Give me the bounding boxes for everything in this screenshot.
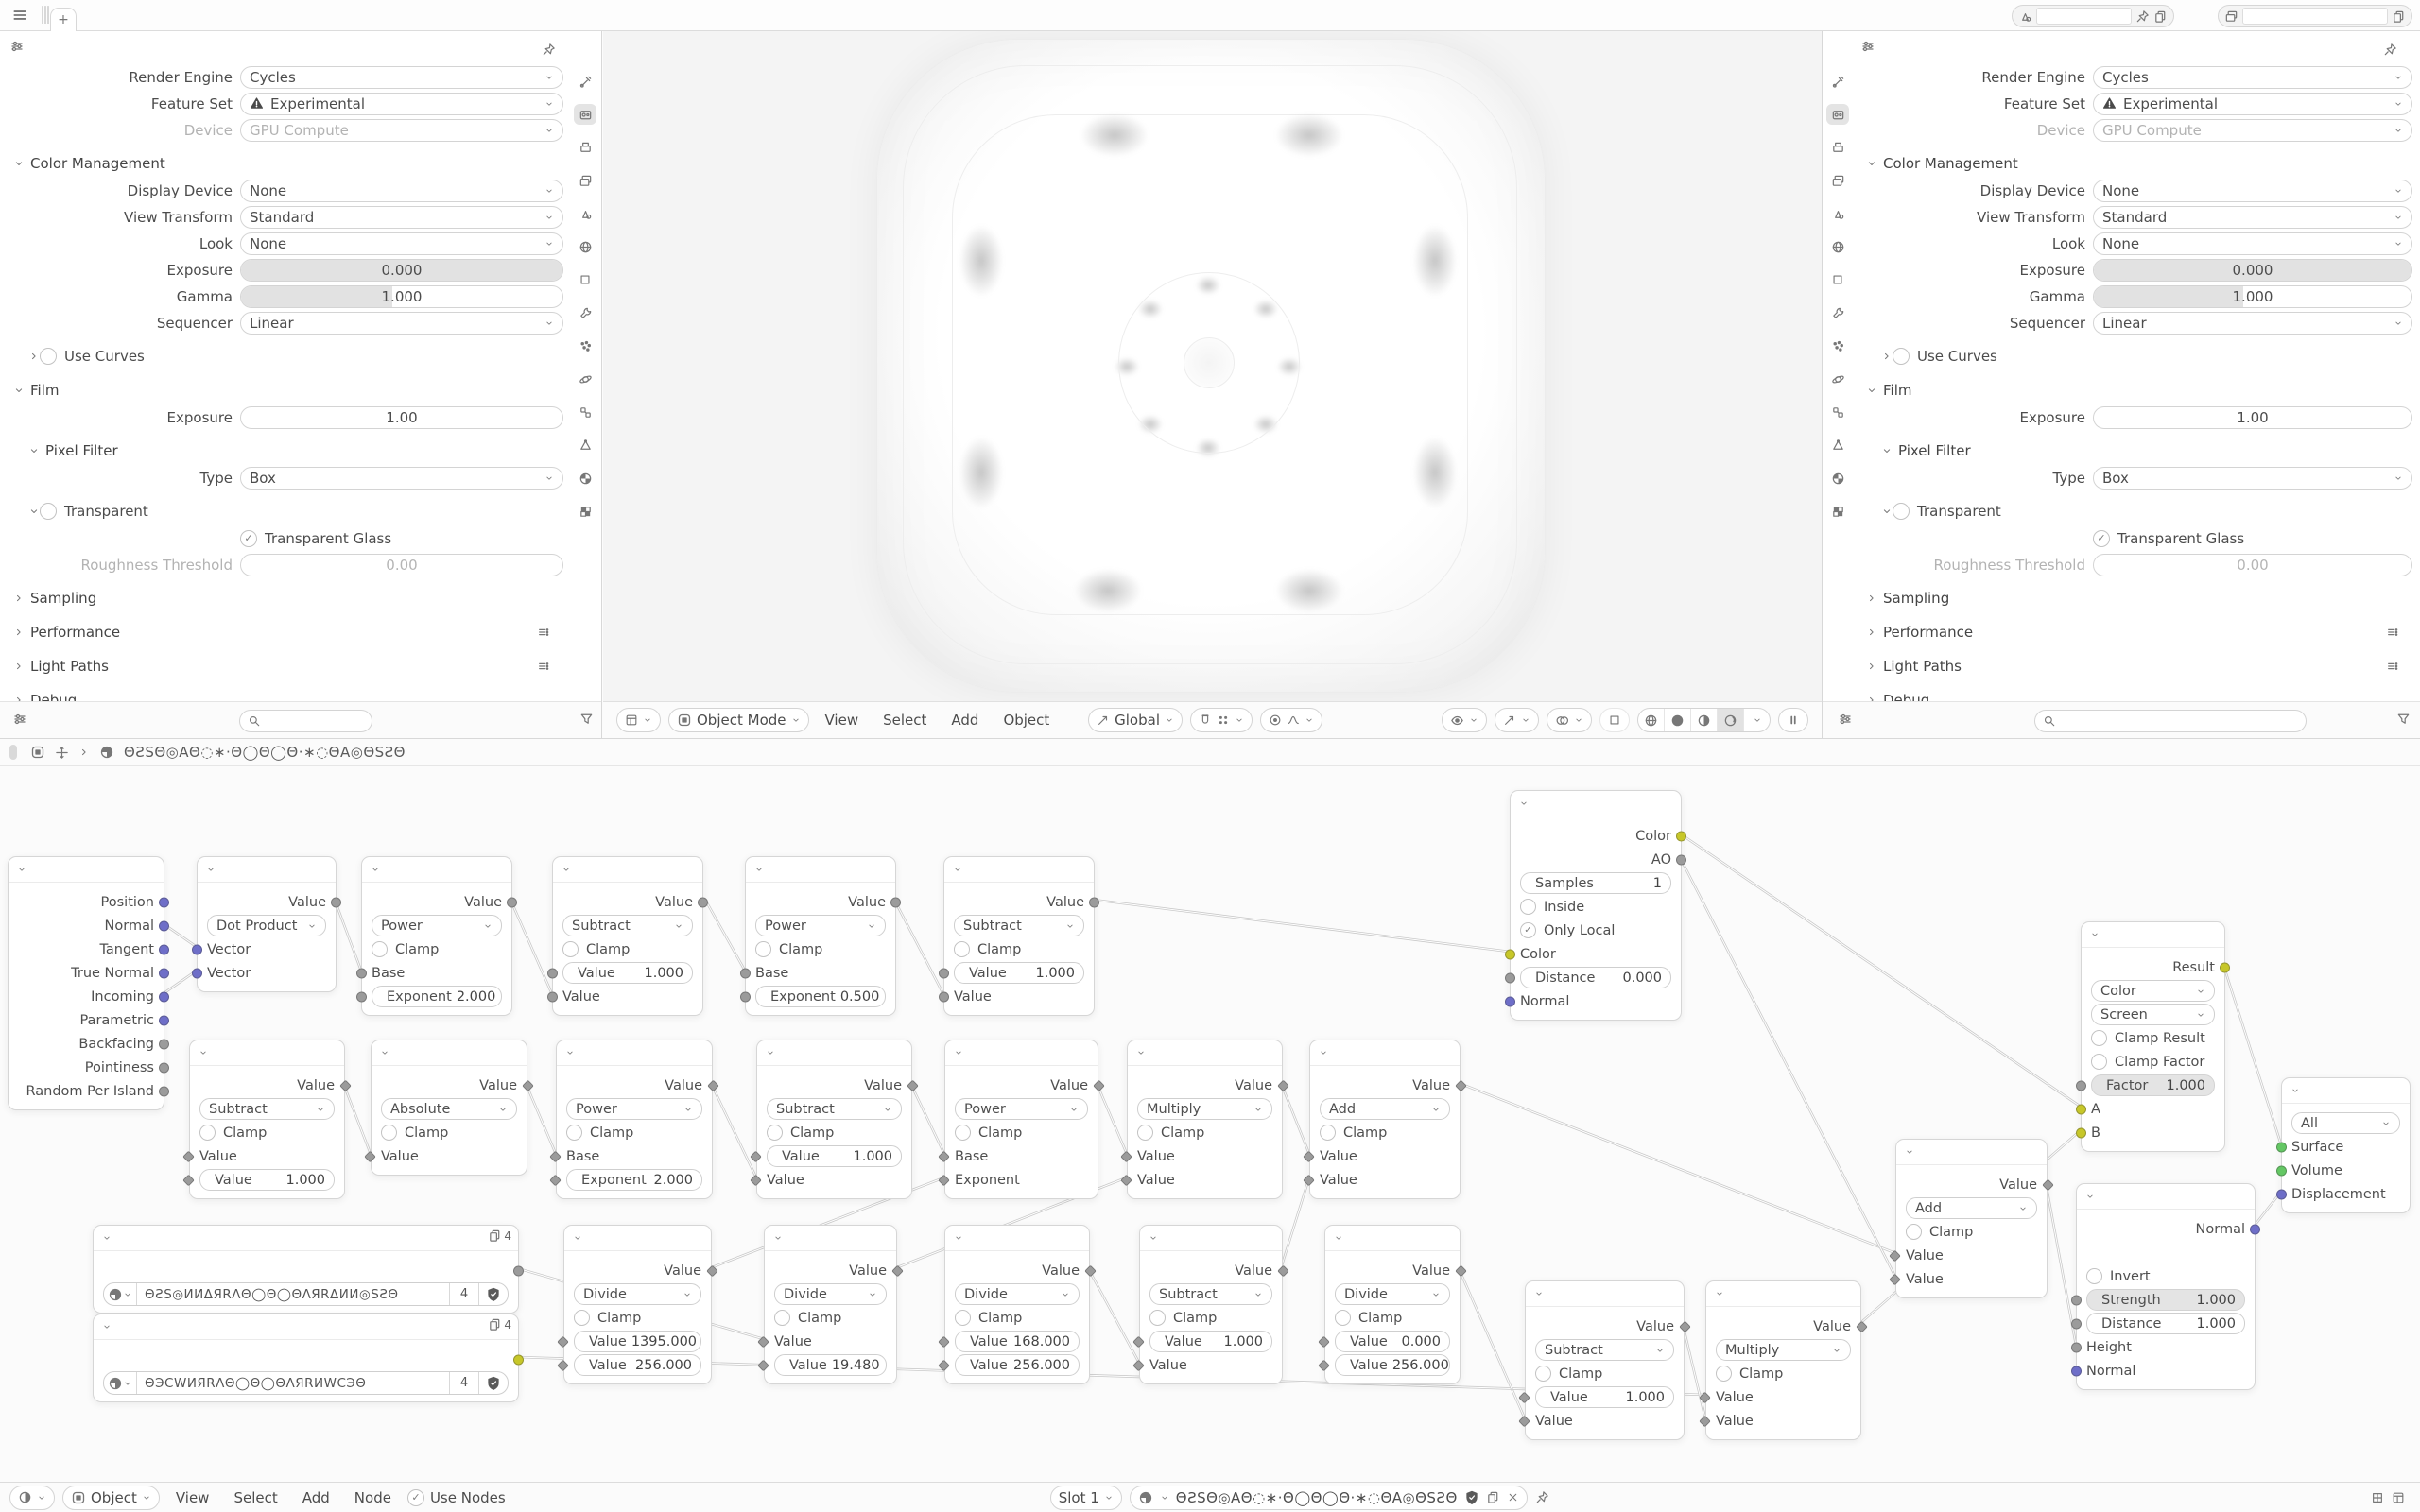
checkbox-only-local[interactable]: ✓Only Local (1511, 919, 1681, 942)
value-field-value[interactable]: Value1.000 (1535, 1386, 1674, 1408)
section-color-management[interactable]: Color Management (0, 151, 563, 176)
node-ambient-occlusion[interactable]: ColorAO Samples1Inside✓Only LocalColor D… (1510, 790, 1682, 1021)
tab-texture[interactable] (574, 501, 596, 522)
select-device[interactable]: GPU Compute (2093, 119, 2412, 142)
section-use-curves[interactable]: Use Curves (1853, 344, 2412, 369)
properties-data-icon[interactable] (12, 712, 27, 727)
select-sequencer[interactable]: Linear (240, 312, 563, 335)
shader-type-selector[interactable]: Object (62, 1486, 160, 1510)
panel-options-icon[interactable] (2386, 626, 2399, 639)
tab-output[interactable] (574, 137, 596, 158)
socket-out-value: Value (1325, 1259, 1460, 1282)
fake-user-shield-icon[interactable] (478, 1283, 508, 1305)
checkbox-clamp[interactable]: Clamp (1896, 1220, 2047, 1244)
checkbox-inside[interactable]: Inside (1511, 895, 1681, 919)
section-performance[interactable]: Performance (0, 620, 563, 644)
socket-out-value: Value (1310, 1074, 1460, 1097)
scene-name-field[interactable] (2036, 8, 2132, 25)
transform-orientation[interactable]: Global (1088, 708, 1183, 732)
row-type: Type Box (0, 466, 563, 490)
select-view-transform[interactable]: Standard (240, 206, 563, 229)
browse-image-icon[interactable] (104, 1283, 136, 1305)
checkbox-clamp[interactable]: Clamp (1140, 1306, 1282, 1330)
row-type: Type Box (1853, 466, 2412, 490)
workspace-tab-2[interactable] (44, 6, 46, 24)
properties-editor-icon[interactable] (1860, 39, 1875, 54)
node-menu-select[interactable]: Select (225, 1489, 285, 1506)
users-count[interactable]: 4 (449, 1283, 478, 1305)
select-type[interactable]: Box (2093, 467, 2412, 490)
checkbox-clamp[interactable]: Clamp (746, 937, 895, 961)
node-header[interactable] (564, 1226, 711, 1251)
value-field-exponent[interactable]: Exponent2.000 (566, 1169, 702, 1191)
section-film[interactable]: Film (0, 378, 563, 403)
node-math-power-1[interactable]: ValuePowerClampBase Exponent2.000 (361, 856, 512, 1016)
section-light-paths[interactable]: Light Paths (1853, 654, 2412, 679)
select-render-engine[interactable]: Cycles (2093, 66, 2412, 89)
socket-out-image (94, 1259, 518, 1282)
checkbox-clamp-factor[interactable]: Clamp Factor (2082, 1050, 2224, 1074)
section-sampling[interactable]: Sampling (0, 586, 563, 610)
operation-dropdown[interactable]: Absolute (381, 1098, 517, 1120)
operation-dropdown[interactable]: Divide (574, 1283, 701, 1305)
grid-icon[interactable] (2371, 1491, 2384, 1504)
viewport-menu-view[interactable]: View (817, 712, 868, 729)
filter-funnel-icon[interactable] (2396, 712, 2411, 726)
socket-in-value: Value (1706, 1409, 1860, 1433)
image-datablock[interactable]: ΘƧЅ◎ИИΔЯRΛΘ◯Θ◯ΘΛЯRΔИИ◎ЅƧΘ 4 (103, 1282, 509, 1306)
fake-user-shield-icon[interactable] (1464, 1490, 1479, 1505)
select-render-engine[interactable]: Cycles (240, 66, 563, 89)
node-math-add-1[interactable]: ValueAddClampValueValue (1309, 1039, 1461, 1199)
socket-out-normal: Normal (2077, 1217, 2255, 1241)
viewport-3d[interactable]: Object ModeViewSelectAddObjectGlobal (603, 31, 1822, 738)
xray-toggle[interactable] (1599, 708, 1630, 732)
material-datablock[interactable]: ΘƧЅΘ◎ΑΘ◌∗·Θ◯Θ◯Θ·∗◌ΘΑ◎ΘЅƧΘ (1130, 1486, 1528, 1510)
pin-id-icon[interactable] (2383, 43, 2397, 57)
checkbox-transparent[interactable] (40, 503, 57, 520)
node-header[interactable] (190, 1040, 344, 1066)
socket-out-value: Value (1526, 1314, 1684, 1338)
checkbox-clamp[interactable]: Clamp (362, 937, 511, 961)
value-field-factor[interactable]: Factor1.000 (2091, 1074, 2215, 1096)
node-image-texture-1[interactable]: 4 ΘƧЅ◎ИИΔЯRΛΘ◯Θ◯ΘΛЯRΔИИ◎ЅƧΘ 4 (93, 1225, 519, 1314)
value-field-distance[interactable]: Distance1.000 (2086, 1313, 2245, 1334)
shading-material-preview[interactable] (1690, 709, 1717, 731)
viewport-menu-object[interactable]: Object (994, 712, 1058, 729)
tab-modifiers[interactable] (1826, 302, 1849, 323)
viewlayer-name-field[interactable] (2242, 8, 2388, 25)
node-menu-view[interactable]: View (167, 1489, 218, 1506)
properties-search-input[interactable] (2034, 710, 2307, 732)
value-field-value[interactable]: Value1.000 (954, 962, 1084, 984)
tab-scene[interactable] (1826, 203, 1849, 224)
node-header[interactable] (2282, 1078, 2410, 1104)
select-look[interactable]: None (240, 232, 563, 255)
tab-object[interactable] (1826, 269, 1849, 290)
node-math-subtract-4[interactable]: ValueSubtractClamp Value1.000Value (756, 1039, 912, 1199)
checkbox-clamp-result[interactable]: Clamp Result (2082, 1026, 2224, 1050)
node-editor-footer: ObjectViewSelectAddNode✓Use NodesSlot 1 … (0, 1482, 2420, 1512)
select-feature-set[interactable]: Experimental (240, 93, 563, 115)
socket-out-value: Value (564, 1259, 711, 1282)
value-field-value[interactable]: Value1.000 (1149, 1331, 1272, 1352)
checkbox-clamp[interactable]: Clamp (1325, 1306, 1460, 1330)
tab-object[interactable] (574, 269, 596, 290)
node-header[interactable] (1310, 1040, 1460, 1066)
number-exposure[interactable]: 1.00 (240, 406, 563, 429)
node-header[interactable] (553, 857, 702, 883)
tab-output[interactable] (1826, 137, 1849, 158)
browse-image-icon[interactable] (104, 1372, 136, 1394)
operation-dropdown[interactable]: All (2291, 1112, 2400, 1134)
editor-type-button[interactable] (9, 1486, 55, 1510)
operation-dropdown[interactable]: Add (1320, 1098, 1450, 1120)
checkbox-clamp[interactable]: Clamp (564, 1306, 711, 1330)
checkbox-transparent-glass[interactable]: ✓ (240, 530, 257, 547)
value-field-value[interactable]: Value1.000 (767, 1145, 902, 1167)
socket-out-value: Value (757, 1074, 911, 1097)
operation-dropdown[interactable]: Power (566, 1098, 702, 1120)
node-material-output[interactable]: AllSurfaceVolumeDisplacement (2281, 1077, 2411, 1213)
section-pixel-filter[interactable]: Pixel Filter (0, 438, 563, 463)
node-header[interactable] (746, 857, 895, 883)
tab-modifiers[interactable] (574, 302, 596, 323)
value-field-value[interactable]: Value168.000 (955, 1331, 1080, 1352)
checkbox-clamp[interactable]: Clamp (1706, 1362, 1860, 1385)
tab-view-layer[interactable] (1826, 170, 1849, 191)
node-header[interactable] (1128, 1040, 1282, 1066)
operation-dropdown[interactable]: Subtract (199, 1098, 335, 1120)
pause-render-button[interactable] (1778, 708, 1808, 732)
operation-dropdown[interactable]: Add (1906, 1197, 2037, 1219)
row-view-transform: View Transform Standard (1853, 205, 2412, 229)
checkbox-use-curves[interactable] (1893, 348, 1910, 365)
properties-editor-icon[interactable] (9, 39, 25, 54)
image-name-field[interactable]: ΘƧЅ◎ИИΔЯRΛΘ◯Θ◯ΘΛЯRΔИИ◎ЅƧΘ (136, 1283, 449, 1305)
section-transparent[interactable]: Transparent (0, 499, 563, 524)
node-header[interactable] (372, 1040, 527, 1066)
close-icon[interactable] (1507, 1491, 1519, 1503)
node-header[interactable] (1706, 1281, 1860, 1307)
checkbox-use-curves[interactable] (40, 348, 57, 365)
node-header[interactable] (1526, 1281, 1684, 1307)
tab-view-layer[interactable] (574, 170, 596, 191)
copy-icon[interactable] (2153, 9, 2168, 24)
node-math-divide-2[interactable]: ValueDivideClampValue Value19.480 (764, 1225, 897, 1384)
select-type[interactable]: Box (240, 467, 563, 490)
slider-exposure[interactable]: 0.000 (2093, 259, 2412, 282)
node-header[interactable] (9, 857, 164, 883)
operation-dropdown[interactable]: Multiply (1716, 1339, 1851, 1361)
row-device: Device GPU Compute (1853, 118, 2412, 142)
material-slot-selector[interactable]: Slot 1 (1050, 1486, 1122, 1510)
value-field-samples[interactable]: Samples1 (1520, 872, 1671, 894)
operation-dropdown[interactable]: Divide (1335, 1283, 1450, 1305)
operation-dropdown[interactable]: Power (372, 915, 502, 936)
node-math-multiply-1[interactable]: ValueMultiplyClampValueValue (1127, 1039, 1283, 1199)
pin-id-icon[interactable] (542, 43, 556, 57)
image-datablock[interactable]: ΘЭСWИЯRΛΘ◯Θ◯ΘΛЯRИWСЭΘ 4 (103, 1371, 509, 1395)
shading-rendered[interactable] (1717, 709, 1743, 731)
value-field-value[interactable]: Value0.000 (1335, 1331, 1450, 1352)
copy-icon[interactable] (2392, 9, 2406, 24)
users-count[interactable]: 4 (449, 1372, 478, 1394)
node-math-divide-3[interactable]: ValueDivideClamp Value168.000 Value256.0… (944, 1225, 1090, 1384)
node-geometry[interactable]: PositionNormalTangentTrue NormalIncoming… (8, 856, 164, 1110)
scene-icon (2018, 9, 2032, 24)
workspace-tab-3[interactable] (47, 6, 49, 24)
window-layout-icon[interactable] (2392, 1491, 2405, 1504)
checkbox-invert[interactable]: Invert (2077, 1264, 2255, 1288)
fake-user-shield-icon[interactable] (478, 1372, 508, 1394)
shading-dropdown[interactable] (1743, 709, 1770, 731)
tab-material[interactable] (574, 468, 596, 489)
tab-particles[interactable] (574, 335, 596, 356)
object-visibility-dropdown[interactable] (1442, 708, 1487, 732)
checkbox-clamp[interactable]: Clamp (945, 1121, 1098, 1144)
tab-constraints[interactable] (574, 402, 596, 422)
tab-physics[interactable] (1826, 369, 1849, 389)
value-field-value[interactable]: Value1.000 (199, 1169, 335, 1191)
header-grip[interactable] (9, 745, 17, 760)
node-math-subtract-5[interactable]: ValueSubtractClamp Value1.000Value (1139, 1225, 1283, 1384)
operation-dropdown[interactable]: Divide (955, 1283, 1080, 1305)
value-field-value[interactable]: Value1.000 (562, 962, 693, 984)
select-sequencer[interactable]: Linear (2093, 312, 2412, 335)
checkbox-clamp[interactable]: Clamp (945, 1306, 1089, 1330)
tab-particles[interactable] (1826, 335, 1849, 356)
checkbox-clamp[interactable]: Clamp (1128, 1121, 1282, 1144)
node-math-subtract-6[interactable]: ValueSubtractClamp Value1.000Value (1525, 1280, 1685, 1440)
value-field-exponent[interactable]: Exponent0.500 (755, 986, 886, 1007)
mode-selector[interactable]: Object Mode (668, 708, 809, 732)
node-header[interactable] (1140, 1226, 1282, 1251)
section-transparent[interactable]: Transparent (1853, 499, 2412, 524)
operation-dropdown[interactable]: Multiply (1137, 1098, 1272, 1120)
node-header[interactable] (945, 1226, 1089, 1251)
snap-cursor-icon[interactable] (55, 746, 69, 760)
socket-in-displacement: Displacement (2282, 1182, 2410, 1206)
tab-scene[interactable] (574, 203, 596, 224)
node-math-add-2[interactable]: ValueAddClampValueValue (1895, 1139, 2048, 1298)
properties-search-input[interactable] (239, 710, 372, 732)
image-name-field[interactable]: ΘЭСWИЯRΛΘ◯Θ◯ΘΛЯRИWСЭΘ (136, 1372, 449, 1394)
viewport-menu-select[interactable]: Select (874, 712, 935, 729)
overlays-dropdown[interactable] (1547, 708, 1592, 732)
hamburger-menu-icon[interactable] (11, 7, 28, 24)
node-math-subtract-3[interactable]: ValueSubtractClampValue Value1.000 (189, 1039, 345, 1199)
number-roughness-threshold[interactable]: 0.00 (2093, 554, 2412, 576)
node-header[interactable] (1325, 1226, 1460, 1251)
section-light-paths[interactable]: Light Paths (0, 654, 563, 679)
panel-options-icon[interactable] (537, 660, 550, 673)
node-header[interactable] (198, 857, 336, 883)
value-field-exponent[interactable]: Exponent2.000 (372, 986, 502, 1007)
operation-dropdown[interactable]: Subtract (1149, 1283, 1272, 1305)
checkbox-clamp[interactable]: Clamp (1526, 1362, 1684, 1385)
node-header[interactable] (765, 1226, 896, 1251)
tab-constraints[interactable] (1826, 402, 1849, 422)
filter-funnel-icon[interactable] (579, 712, 594, 726)
select-display-device[interactable]: None (2093, 180, 2412, 202)
section-use-curves[interactable]: Use Curves (0, 344, 563, 369)
node-header[interactable] (1896, 1140, 2047, 1165)
scene-selector[interactable] (2012, 5, 2174, 27)
viewport-menu-add[interactable]: Add (942, 712, 987, 729)
value-field-value[interactable]: Value256.000 (1335, 1354, 1450, 1376)
tab-material[interactable] (1826, 468, 1849, 489)
socket-out-random-per-island: Random Per Island (9, 1079, 164, 1103)
operation-dropdown[interactable]: Screen (2091, 1004, 2215, 1025)
use-nodes-checkbox[interactable]: ✓Use Nodes (407, 1489, 506, 1506)
value-field-value[interactable]: Value19.480 (774, 1354, 887, 1376)
node-header[interactable]: 4 (94, 1314, 518, 1340)
checkbox-clamp[interactable]: Clamp (765, 1306, 896, 1330)
editor-type-button[interactable] (616, 708, 661, 732)
operation-dropdown[interactable]: Power (955, 1098, 1088, 1120)
properties-data-icon[interactable] (1838, 712, 1853, 727)
chevron-right-icon (78, 747, 90, 758)
node-header[interactable] (757, 1040, 911, 1066)
section-pixel-filter[interactable]: Pixel Filter (1853, 438, 2412, 463)
node-header[interactable] (2082, 922, 2224, 948)
workspace-tab-1[interactable] (42, 6, 43, 24)
tab-render[interactable] (574, 104, 596, 125)
node-math-multiply-2[interactable]: ValueMultiplyClampValueValue (1705, 1280, 1861, 1440)
tab-object-data[interactable] (574, 435, 596, 455)
node-math-absolute[interactable]: ValueAbsoluteClampValue (371, 1039, 527, 1176)
number-roughness-threshold[interactable]: 0.00 (240, 554, 563, 576)
value-field-value[interactable]: Value256.000 (955, 1354, 1080, 1376)
node-math-power-3[interactable]: ValuePowerClampBase Exponent2.000 (556, 1039, 713, 1199)
tab-tool[interactable] (1826, 71, 1849, 92)
viewlayer-selector[interactable] (2218, 5, 2412, 27)
breadcrumb-material-name[interactable]: ΘƧЅΘ◎ΑΘ◌∗·Θ◯Θ◯Θ·∗◌ΘΑ◎ΘЅƧΘ (124, 744, 406, 761)
node-header[interactable] (557, 1040, 712, 1066)
operation-dropdown[interactable]: Divide (774, 1283, 887, 1305)
pin-icon[interactable] (2135, 9, 2150, 24)
node-math-divide-4[interactable]: ValueDivideClamp Value0.000 Value256.000 (1324, 1225, 1461, 1384)
node-mix-color[interactable]: ResultColorScreenClamp ResultClamp Facto… (2081, 921, 2225, 1152)
operation-dropdown[interactable]: Subtract (954, 915, 1084, 936)
socket-in-color: Color (1511, 942, 1681, 966)
tab-physics[interactable] (574, 369, 596, 389)
checkbox-clamp[interactable]: Clamp (1310, 1121, 1460, 1144)
value-field-distance[interactable]: Distance0.000 (1520, 967, 1671, 988)
operation-dropdown[interactable]: Subtract (562, 915, 693, 936)
node-menu-node[interactable]: Node (346, 1489, 400, 1506)
snap-toggle[interactable] (1190, 708, 1253, 732)
shading-wireframe[interactable] (1638, 709, 1664, 731)
row-feature-set: Feature Set Experimental (0, 92, 563, 115)
node-math-power-4[interactable]: ValuePowerClampBaseExponent (944, 1039, 1098, 1199)
panel-options-icon[interactable] (537, 626, 550, 639)
checkbox-clamp[interactable]: Clamp (944, 937, 1094, 961)
select-view-transform[interactable]: Standard (2093, 206, 2412, 229)
slider-exposure[interactable]: 0.000 (240, 259, 563, 282)
shading-solid[interactable] (1664, 709, 1690, 731)
proportional-editing[interactable] (1260, 708, 1322, 732)
tab-object-data[interactable] (1826, 435, 1849, 455)
socket-in-value: Value (553, 985, 702, 1008)
value-field-value[interactable]: Value256.000 (574, 1354, 701, 1376)
operation-dropdown[interactable]: Power (755, 915, 886, 936)
properties-header (1823, 701, 2420, 738)
tab-texture[interactable] (1826, 501, 1849, 522)
node-menu-add[interactable]: Add (294, 1489, 338, 1506)
checkbox-clamp[interactable]: Clamp (190, 1121, 344, 1144)
node-header[interactable] (945, 1040, 1098, 1066)
node-math-subtract-1[interactable]: ValueSubtractClamp Value1.000Value (552, 856, 703, 1016)
node-bump[interactable]: NormalInvert Strength1.000 Distance1.000… (2076, 1183, 2256, 1390)
copy-icon[interactable] (1486, 1490, 1500, 1504)
tree-select-icon[interactable] (30, 745, 45, 760)
socket-in-b: B (2082, 1121, 2224, 1144)
socket-in-value: Value (765, 1330, 896, 1353)
slider-gamma[interactable]: 1.000 (2093, 285, 2412, 308)
tab-world[interactable] (1826, 236, 1849, 257)
row-roughness-threshold: Roughness Threshold 0.00 (1853, 553, 2412, 576)
row-render-engine: Render Engine Cycles (1853, 65, 2412, 89)
checkbox-clamp[interactable]: Clamp (372, 1121, 527, 1144)
select-feature-set[interactable]: Experimental (2093, 93, 2412, 115)
section-color-management[interactable]: Color Management (1853, 151, 2412, 176)
value-field-value[interactable]: Value1395.000 (574, 1331, 701, 1352)
number-exposure[interactable]: 1.00 (2093, 406, 2412, 429)
section-film[interactable]: Film (1853, 378, 2412, 403)
checkbox-clamp[interactable]: Clamp (557, 1121, 712, 1144)
operation-dropdown[interactable]: Color (2091, 980, 2215, 1002)
select-display-device[interactable]: None (240, 180, 563, 202)
operation-dropdown[interactable]: Subtract (1535, 1339, 1674, 1361)
socket-in-base: Base (362, 961, 511, 985)
node-math-subtract-2[interactable]: ValueSubtractClamp Value1.000Value (943, 856, 1095, 1016)
node-math-power-2[interactable]: ValuePowerClampBase Exponent0.500 (745, 856, 896, 1016)
node-vector-math-dot-product[interactable]: ValueDot ProductVectorVector (197, 856, 337, 992)
tab-tool[interactable] (574, 71, 596, 92)
operation-dropdown[interactable]: Dot Product (207, 915, 326, 936)
checkbox-clamp[interactable]: Clamp (757, 1121, 911, 1144)
socket-in-value: Value (190, 1144, 344, 1168)
pin-icon[interactable] (1535, 1490, 1549, 1504)
slider-gamma[interactable]: 1.000 (240, 285, 563, 308)
operation-dropdown[interactable]: Subtract (767, 1098, 902, 1120)
node-header[interactable] (2077, 1184, 2255, 1210)
checkbox-transparent[interactable] (1893, 503, 1910, 520)
section-performance[interactable]: Performance (1853, 620, 2412, 644)
checkbox-clamp[interactable]: Clamp (553, 937, 702, 961)
panel-options-icon[interactable] (2386, 660, 2399, 673)
checkbox-transparent-glass[interactable]: ✓ (2093, 530, 2110, 547)
gizmos-dropdown[interactable] (1495, 708, 1539, 732)
select-look[interactable]: None (2093, 232, 2412, 255)
row-exposure: Exposure 0.000 (1853, 258, 2412, 282)
node-header[interactable] (1511, 791, 1681, 816)
node-header[interactable] (944, 857, 1094, 883)
tab-world[interactable] (574, 236, 596, 257)
tab-render[interactable] (1826, 104, 1849, 125)
select-device[interactable]: GPU Compute (240, 119, 563, 142)
node-header[interactable] (362, 857, 511, 883)
section-sampling[interactable]: Sampling (1853, 586, 2412, 610)
socket-in-height: Height (2077, 1335, 2255, 1359)
node-image-texture-2[interactable]: 4 ΘЭСWИЯRΛΘ◯Θ◯ΘΛЯRИWСЭΘ 4 (93, 1314, 519, 1402)
add-tab-button[interactable]: + (50, 8, 77, 31)
node-header[interactable]: 4 (94, 1226, 518, 1251)
value-field-strength[interactable]: Strength1.000 (2086, 1289, 2245, 1311)
node-math-divide-1[interactable]: ValueDivideClamp Value1395.000 Value256.… (563, 1225, 712, 1384)
